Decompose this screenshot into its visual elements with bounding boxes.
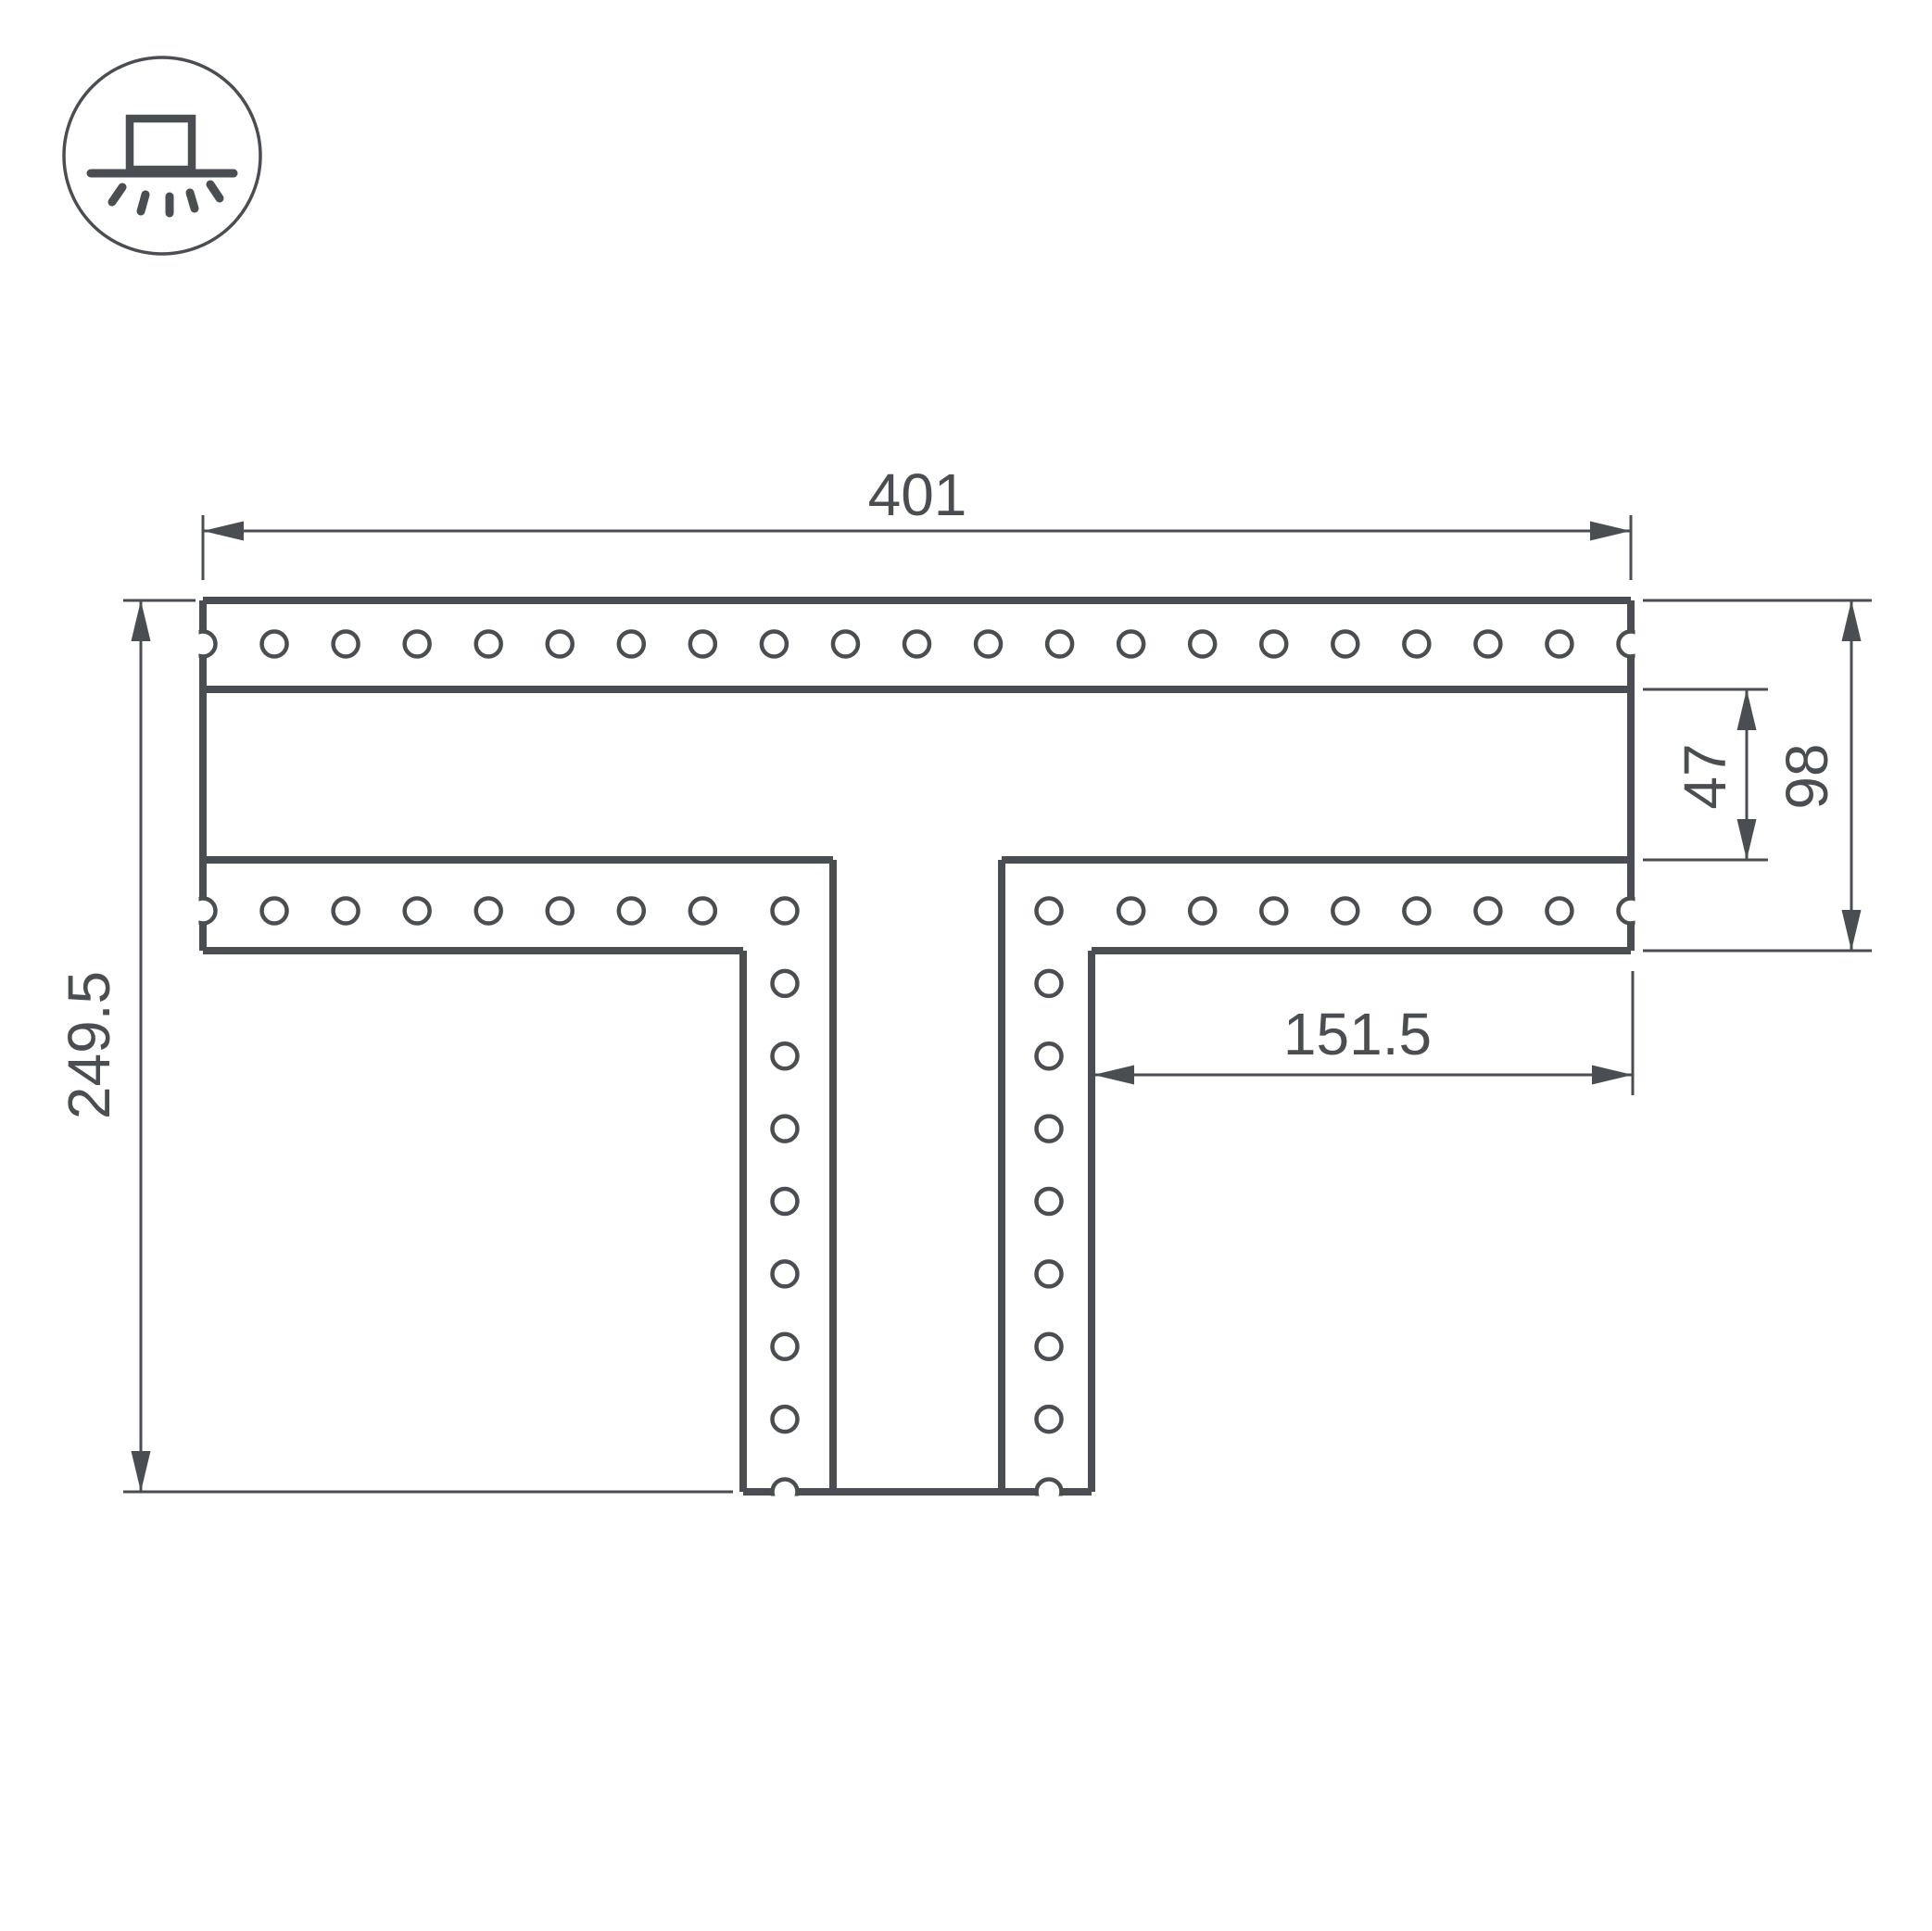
- dim-right-offset-label: 151.5: [1283, 1001, 1432, 1067]
- dimension-annotations: [123, 515, 1872, 1492]
- dim-bar-height-label: 98: [1774, 743, 1840, 809]
- dim-slot-height-label: 47: [1672, 743, 1738, 809]
- technical-drawing: 401 249.5 47 98 151.5: [0, 0, 1932, 1931]
- icon-fixture-box: [130, 119, 192, 170]
- dim-width-total-label: 401: [868, 461, 967, 528]
- icon-circle: [64, 57, 260, 254]
- dimension-labels: 401 249.5 47 98 151.5: [56, 461, 1840, 1119]
- icon-light-rays: [112, 184, 220, 213]
- dim-height-total-label: 249.5: [56, 971, 122, 1119]
- recessed-downlight-icon: [64, 57, 260, 254]
